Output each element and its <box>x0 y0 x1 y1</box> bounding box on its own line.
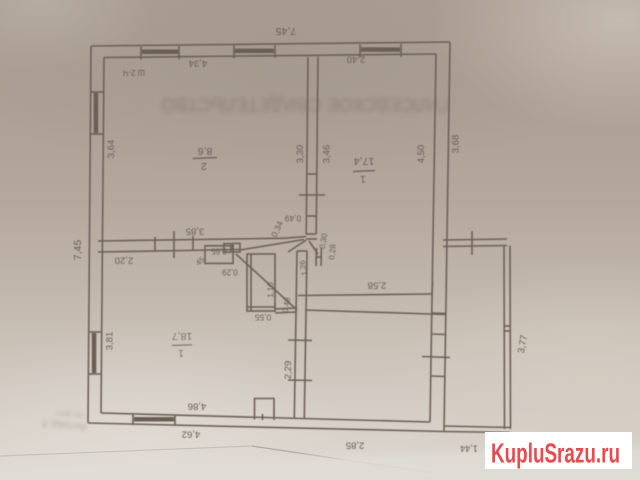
svg-text:18,7: 18,7 <box>172 330 193 342</box>
svg-text:2,20: 2,20 <box>115 255 134 266</box>
svg-text:3,85: 3,85 <box>186 226 205 237</box>
svg-text:0,28: 0,28 <box>327 243 337 260</box>
svg-text:0,34: 0,34 <box>269 219 285 238</box>
svg-text:по дел: по дел <box>56 409 84 421</box>
svg-text:4,50: 4,50 <box>416 145 427 164</box>
svg-text:4,62: 4,62 <box>182 429 201 440</box>
svg-text:7,45: 7,45 <box>276 25 297 37</box>
svg-text:3,77: 3,77 <box>516 334 530 354</box>
svg-text:4,86: 4,86 <box>188 401 207 412</box>
svg-text:Ш 2-Ч: Ш 2-Ч <box>123 68 145 77</box>
svg-text:8,6: 8,6 <box>198 145 213 157</box>
svg-text:2,40: 2,40 <box>347 54 366 65</box>
svg-text:2,58: 2,58 <box>368 280 387 291</box>
svg-text:KupluSrazu.ru: KupluSrazu.ru <box>491 438 620 469</box>
svg-text:3,64: 3,64 <box>106 140 117 159</box>
svg-text:0,49: 0,49 <box>284 214 301 224</box>
svg-text:3,30: 3,30 <box>295 145 306 164</box>
svg-text:0,29: 0,29 <box>222 268 238 277</box>
svg-text:17,4: 17,4 <box>354 155 375 167</box>
svg-text:1,10: 1,10 <box>267 282 276 298</box>
svg-text:1: 1 <box>360 173 366 185</box>
svg-text:4,34: 4,34 <box>189 58 208 69</box>
svg-text:2: 2 <box>201 160 207 172</box>
svg-text:0,65: 0,65 <box>211 247 227 256</box>
svg-text:1,44: 1,44 <box>460 444 478 454</box>
svg-text:3,68: 3,68 <box>451 135 462 154</box>
svg-text:3,81: 3,81 <box>105 332 116 351</box>
svg-text:3,46: 3,46 <box>322 145 333 164</box>
svg-text:7,45: 7,45 <box>72 240 84 261</box>
svg-text:1: 1 <box>178 347 184 359</box>
svg-text:0,48: 0,48 <box>281 296 293 313</box>
svg-text:2,29: 2,29 <box>283 361 294 380</box>
svg-text:ГИЛСЕВСКОЕ СВИДЕТЕЛЬСТВО: ГИЛСЕВСКОЕ СВИДЕТЕЛЬСТВО <box>161 93 449 115</box>
svg-text:0,55: 0,55 <box>254 313 271 323</box>
svg-text:2,85: 2,85 <box>346 440 365 451</box>
